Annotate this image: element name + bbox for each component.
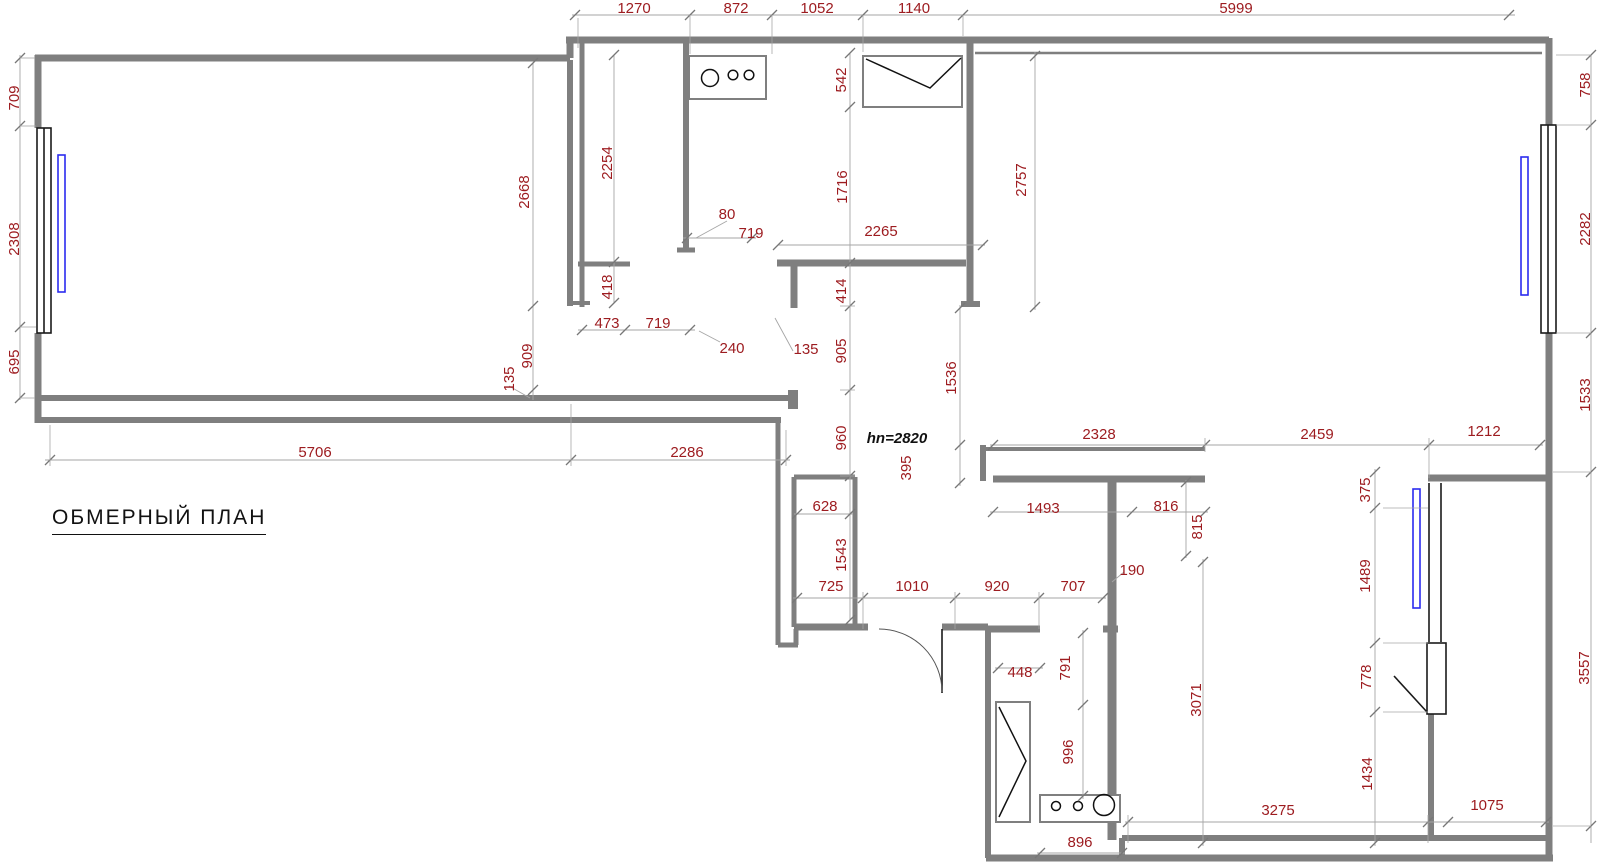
dimension-label: 719 — [645, 315, 670, 332]
ceiling-height-note: hn=2820 — [867, 430, 928, 447]
dimension-label: 2668 — [516, 175, 533, 208]
left-radiator — [58, 155, 65, 292]
dimension-label: 695 — [6, 349, 23, 374]
dimension-label: 1010 — [895, 578, 928, 595]
dimension-label: 395 — [898, 455, 915, 480]
right-radiator — [1521, 157, 1528, 295]
dimension-label: 1140 — [898, 0, 930, 17]
dimension-label: 872 — [723, 0, 748, 17]
dimension-label: 240 — [719, 340, 744, 357]
leader-line — [775, 318, 793, 351]
dimension-label: 1543 — [833, 538, 850, 571]
dimension-label: 3275 — [1261, 802, 1294, 819]
walls — [35, 38, 1553, 860]
exterior-outline — [35, 38, 1549, 860]
dimension-label: 2265 — [864, 223, 897, 240]
dimension-label: 80 — [719, 206, 736, 223]
dimension-label: 2328 — [1082, 426, 1115, 443]
dimension-label: 2282 — [1577, 212, 1594, 245]
dimension-label: 1052 — [800, 0, 833, 17]
dimension-label: 1075 — [1470, 797, 1503, 814]
dimension-label: 2286 — [670, 444, 703, 461]
dimension-label: 628 — [812, 498, 837, 515]
dimension-label: 709 — [6, 85, 23, 110]
dimension-label: 135 — [501, 366, 518, 391]
dimension-label: 418 — [599, 274, 616, 299]
dimension-label: 135 — [793, 341, 818, 358]
dimension-label: 816 — [1153, 498, 1178, 515]
dimension-label: 5999 — [1219, 0, 1252, 17]
dimension-label: 909 — [519, 343, 536, 368]
dimension-labels: 1270872105211405999709230869575822821533… — [6, 0, 1594, 851]
dimension-label: 473 — [594, 315, 619, 332]
dimension-label: 190 — [1119, 562, 1144, 579]
dimension-label: 920 — [984, 578, 1009, 595]
dimension-label: 375 — [1357, 477, 1374, 502]
balcony-door-swing — [1394, 676, 1427, 712]
dimension-label: 778 — [1358, 664, 1375, 689]
plan-title: ОБМЕРНЫЙ ПЛАН — [52, 506, 266, 535]
dimension-label: 707 — [1060, 578, 1085, 595]
dimension-label: 1489 — [1357, 559, 1374, 592]
floorplan-canvas: 1270872105211405999709230869575822821533… — [0, 0, 1600, 865]
leader-line — [699, 331, 720, 342]
dimension-label: 542 — [833, 67, 850, 92]
dimension-label: 1493 — [1026, 500, 1059, 517]
balcony-window — [1429, 483, 1441, 642]
balcony-radiator — [1413, 489, 1420, 608]
dimension-label: 1533 — [1577, 378, 1594, 411]
dimension-label: 791 — [1057, 655, 1074, 680]
dimension-label: 896 — [1067, 834, 1092, 851]
dimension-label: 414 — [833, 278, 850, 303]
dimension-label: 2254 — [599, 146, 616, 179]
dimension-label: 719 — [738, 225, 763, 242]
dimension-label: 758 — [1577, 72, 1594, 97]
dimension-label: 5706 — [298, 444, 331, 461]
floorplan-stage: 1270872105211405999709230869575822821533… — [0, 0, 1600, 865]
dimension-label: 2459 — [1300, 426, 1333, 443]
dimension-label: 996 — [1060, 739, 1077, 764]
dimension-label: 448 — [1007, 664, 1032, 681]
dimension-label: 905 — [833, 338, 850, 363]
dimension-label: 3557 — [1576, 651, 1593, 684]
dimension-label: 1716 — [834, 170, 851, 203]
dimension-label: 1212 — [1467, 423, 1500, 440]
dimension-label: 3071 — [1188, 683, 1205, 716]
dimension-label: 2757 — [1013, 163, 1030, 196]
entrance-door-arc — [879, 629, 942, 692]
dimension-label: 960 — [833, 425, 850, 450]
dimension-label: 1536 — [943, 361, 960, 394]
stove-counter — [689, 56, 766, 99]
dimension-label: 815 — [1189, 514, 1206, 539]
balcony-door-block — [1427, 643, 1446, 714]
dimension-label: 725 — [818, 578, 843, 595]
leader-line — [696, 221, 727, 238]
dimension-label: 1270 — [617, 0, 650, 17]
dimension-lines — [15, 10, 1596, 858]
dimension-label: 1434 — [1359, 757, 1376, 790]
dimension-label: 2308 — [6, 222, 23, 255]
